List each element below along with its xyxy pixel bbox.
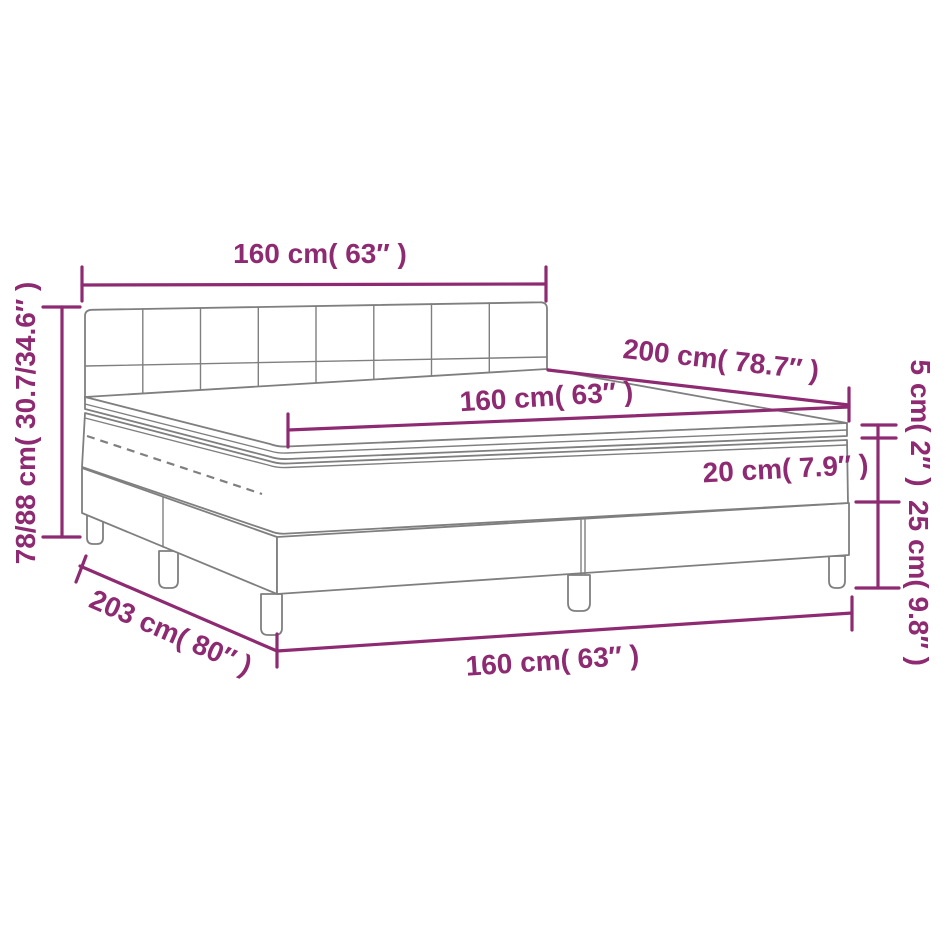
bed-leg <box>829 556 845 588</box>
bed-dimension-diagram: 160 cm( 63″ ) 78/88 cm( 30.7/34.6″ ) 200… <box>0 0 947 947</box>
dim-right-heights: 5 cm( 2″ ) 25 cm( 9.8″ ) <box>856 359 936 665</box>
dimension-label: 5 cm( 2″ ) <box>905 359 936 486</box>
bed-leg <box>159 551 178 588</box>
dim-overall-height: 78/88 cm( 30.7/34.6″ ) <box>10 282 80 565</box>
dimension-label: 78/88 cm( 30.7/34.6″ ) <box>10 282 41 565</box>
bed-leg <box>261 594 282 635</box>
dimension-label: 160 cm( 63″ ) <box>465 639 640 681</box>
dimension-label: 160 cm( 63″ ) <box>233 238 407 269</box>
dim-frame-width: 160 cm( 63″ ) <box>277 597 852 682</box>
dim-headboard-width: 160 cm( 63″ ) <box>82 238 546 301</box>
dimension-label: 25 cm( 9.8″ ) <box>903 500 934 666</box>
dimension-line <box>82 284 546 285</box>
bed-leg <box>568 575 590 611</box>
dimension-label: 200 cm( 78.7″ ) <box>621 333 820 386</box>
